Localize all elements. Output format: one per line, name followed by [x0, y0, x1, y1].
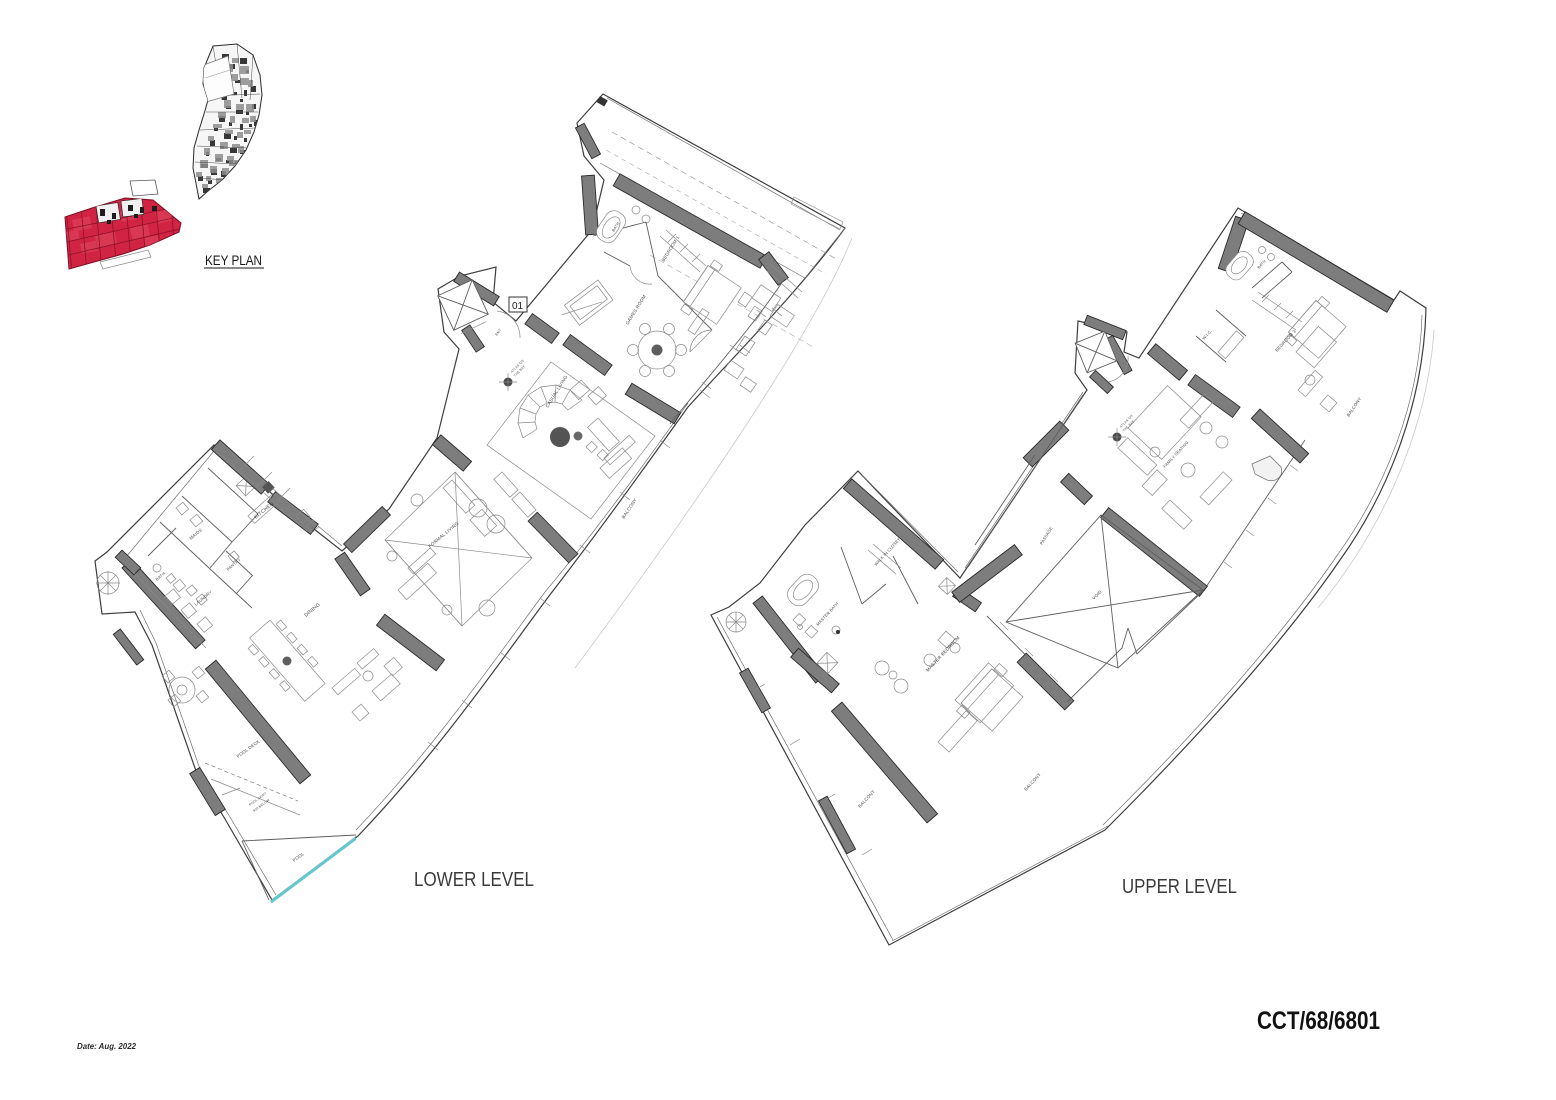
- svg-text:KEY PLAN: KEY PLAN: [205, 252, 262, 268]
- svg-text:CCT/68/6801: CCT/68/6801: [1257, 1007, 1380, 1035]
- svg-text:UPPER LEVEL: UPPER LEVEL: [1122, 875, 1237, 898]
- svg-text:LOWER LEVEL: LOWER LEVEL: [414, 868, 534, 891]
- svg-text:01: 01: [512, 301, 524, 312]
- svg-text:Date: Aug. 2022: Date: Aug. 2022: [77, 1041, 136, 1051]
